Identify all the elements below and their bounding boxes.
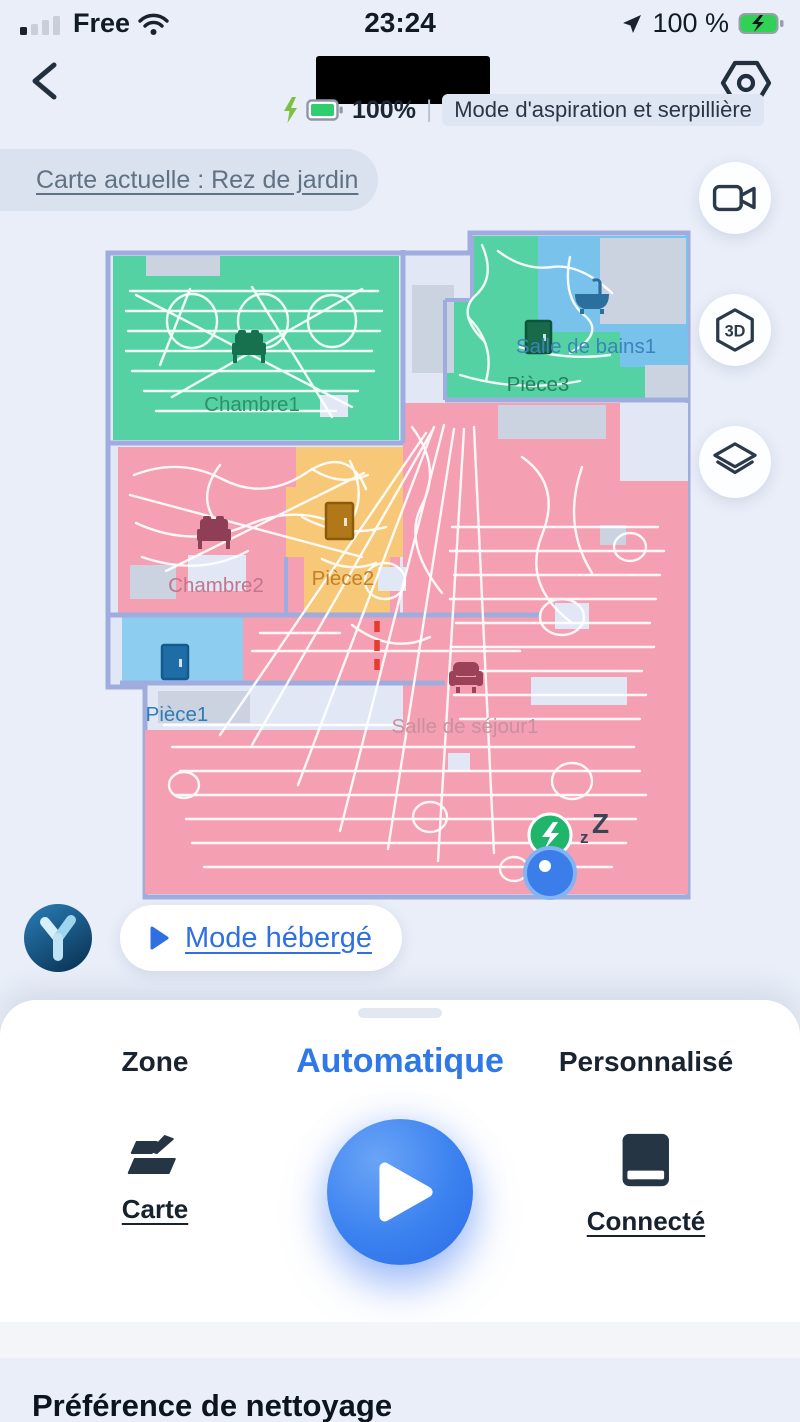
charging-bolt-icon <box>283 97 298 123</box>
bottom-sheet: Zone Automatique Personnalisé Carte <box>0 1000 800 1322</box>
dock-icon <box>618 1132 674 1190</box>
play-icon <box>377 1160 435 1224</box>
location-arrow-icon <box>621 13 643 35</box>
current-map-label: Carte actuelle : Rez de jardin <box>36 166 358 195</box>
svg-text:3D: 3D <box>725 323 746 341</box>
hosted-mode-button[interactable]: Mode hébergé <box>120 905 402 971</box>
room-label: Pièce2 <box>312 567 375 590</box>
room-label: Pièce1 <box>146 703 209 726</box>
map-layers-icon <box>712 441 758 483</box>
battery-charging-icon <box>738 12 786 35</box>
dock-status-label: Connecté <box>587 1206 705 1237</box>
divider: | <box>426 96 432 124</box>
map-edit-icon <box>123 1134 187 1178</box>
back-chevron-icon <box>28 61 60 101</box>
status-battery-label: 100 % <box>652 8 729 39</box>
status-bar: Free 23:24 100 % <box>0 0 800 44</box>
device-battery-label: 100% <box>352 96 416 125</box>
tab-automatique[interactable]: Automatique <box>296 1042 504 1081</box>
room-label: Chambre1 <box>204 393 300 416</box>
map-edit-button[interactable]: Carte <box>122 1134 188 1225</box>
back-button[interactable] <box>28 58 68 104</box>
device-battery-icon <box>306 98 344 122</box>
device-status-row: 100% | Mode d'aspiration et serpillière <box>283 94 764 126</box>
3d-view-button[interactable]: 3D <box>699 294 771 366</box>
section-divider <box>0 1322 800 1358</box>
video-camera-button[interactable] <box>699 162 771 234</box>
cleaning-preference-heading: Préférence de nettoyage <box>32 1388 392 1422</box>
play-small-icon <box>150 926 169 950</box>
room-label: Pièce3 <box>507 373 570 396</box>
3d-view-icon: 3D <box>712 307 758 353</box>
map-edit-label: Carte <box>122 1194 188 1225</box>
sleep-indicator-small: z <box>580 828 589 847</box>
room-label: Salle de séjour1 <box>391 715 538 738</box>
door-icon <box>326 503 353 539</box>
floor-map[interactable]: Chambre1 Pièce3 Salle de bains1 Chambre2… <box>100 225 695 902</box>
screen: Free 23:24 100 % <box>0 0 800 1422</box>
sleep-indicator-big: Z <box>592 808 609 839</box>
current-map-banner[interactable]: Carte actuelle : Rez de jardin <box>0 149 378 211</box>
robot-icon[interactable] <box>525 848 575 898</box>
sheet-drag-handle[interactable] <box>358 1008 442 1018</box>
tab-zone[interactable]: Zone <box>122 1046 189 1078</box>
door-icon <box>162 645 188 679</box>
video-camera-icon <box>712 179 758 217</box>
dock-status-button[interactable]: Connecté <box>587 1132 705 1237</box>
room-label: Salle de bains1 <box>516 335 656 358</box>
cleaning-mode-badge: Mode d'aspiration et serpillière <box>442 94 764 126</box>
map-layers-button[interactable] <box>699 426 771 498</box>
hosted-mode-label: Mode hébergé <box>185 922 372 955</box>
start-cleaning-button[interactable] <box>327 1119 473 1265</box>
robot-avatar <box>24 904 92 972</box>
room-label: Chambre2 <box>168 574 264 597</box>
tab-personnalise[interactable]: Personnalisé <box>559 1046 733 1078</box>
